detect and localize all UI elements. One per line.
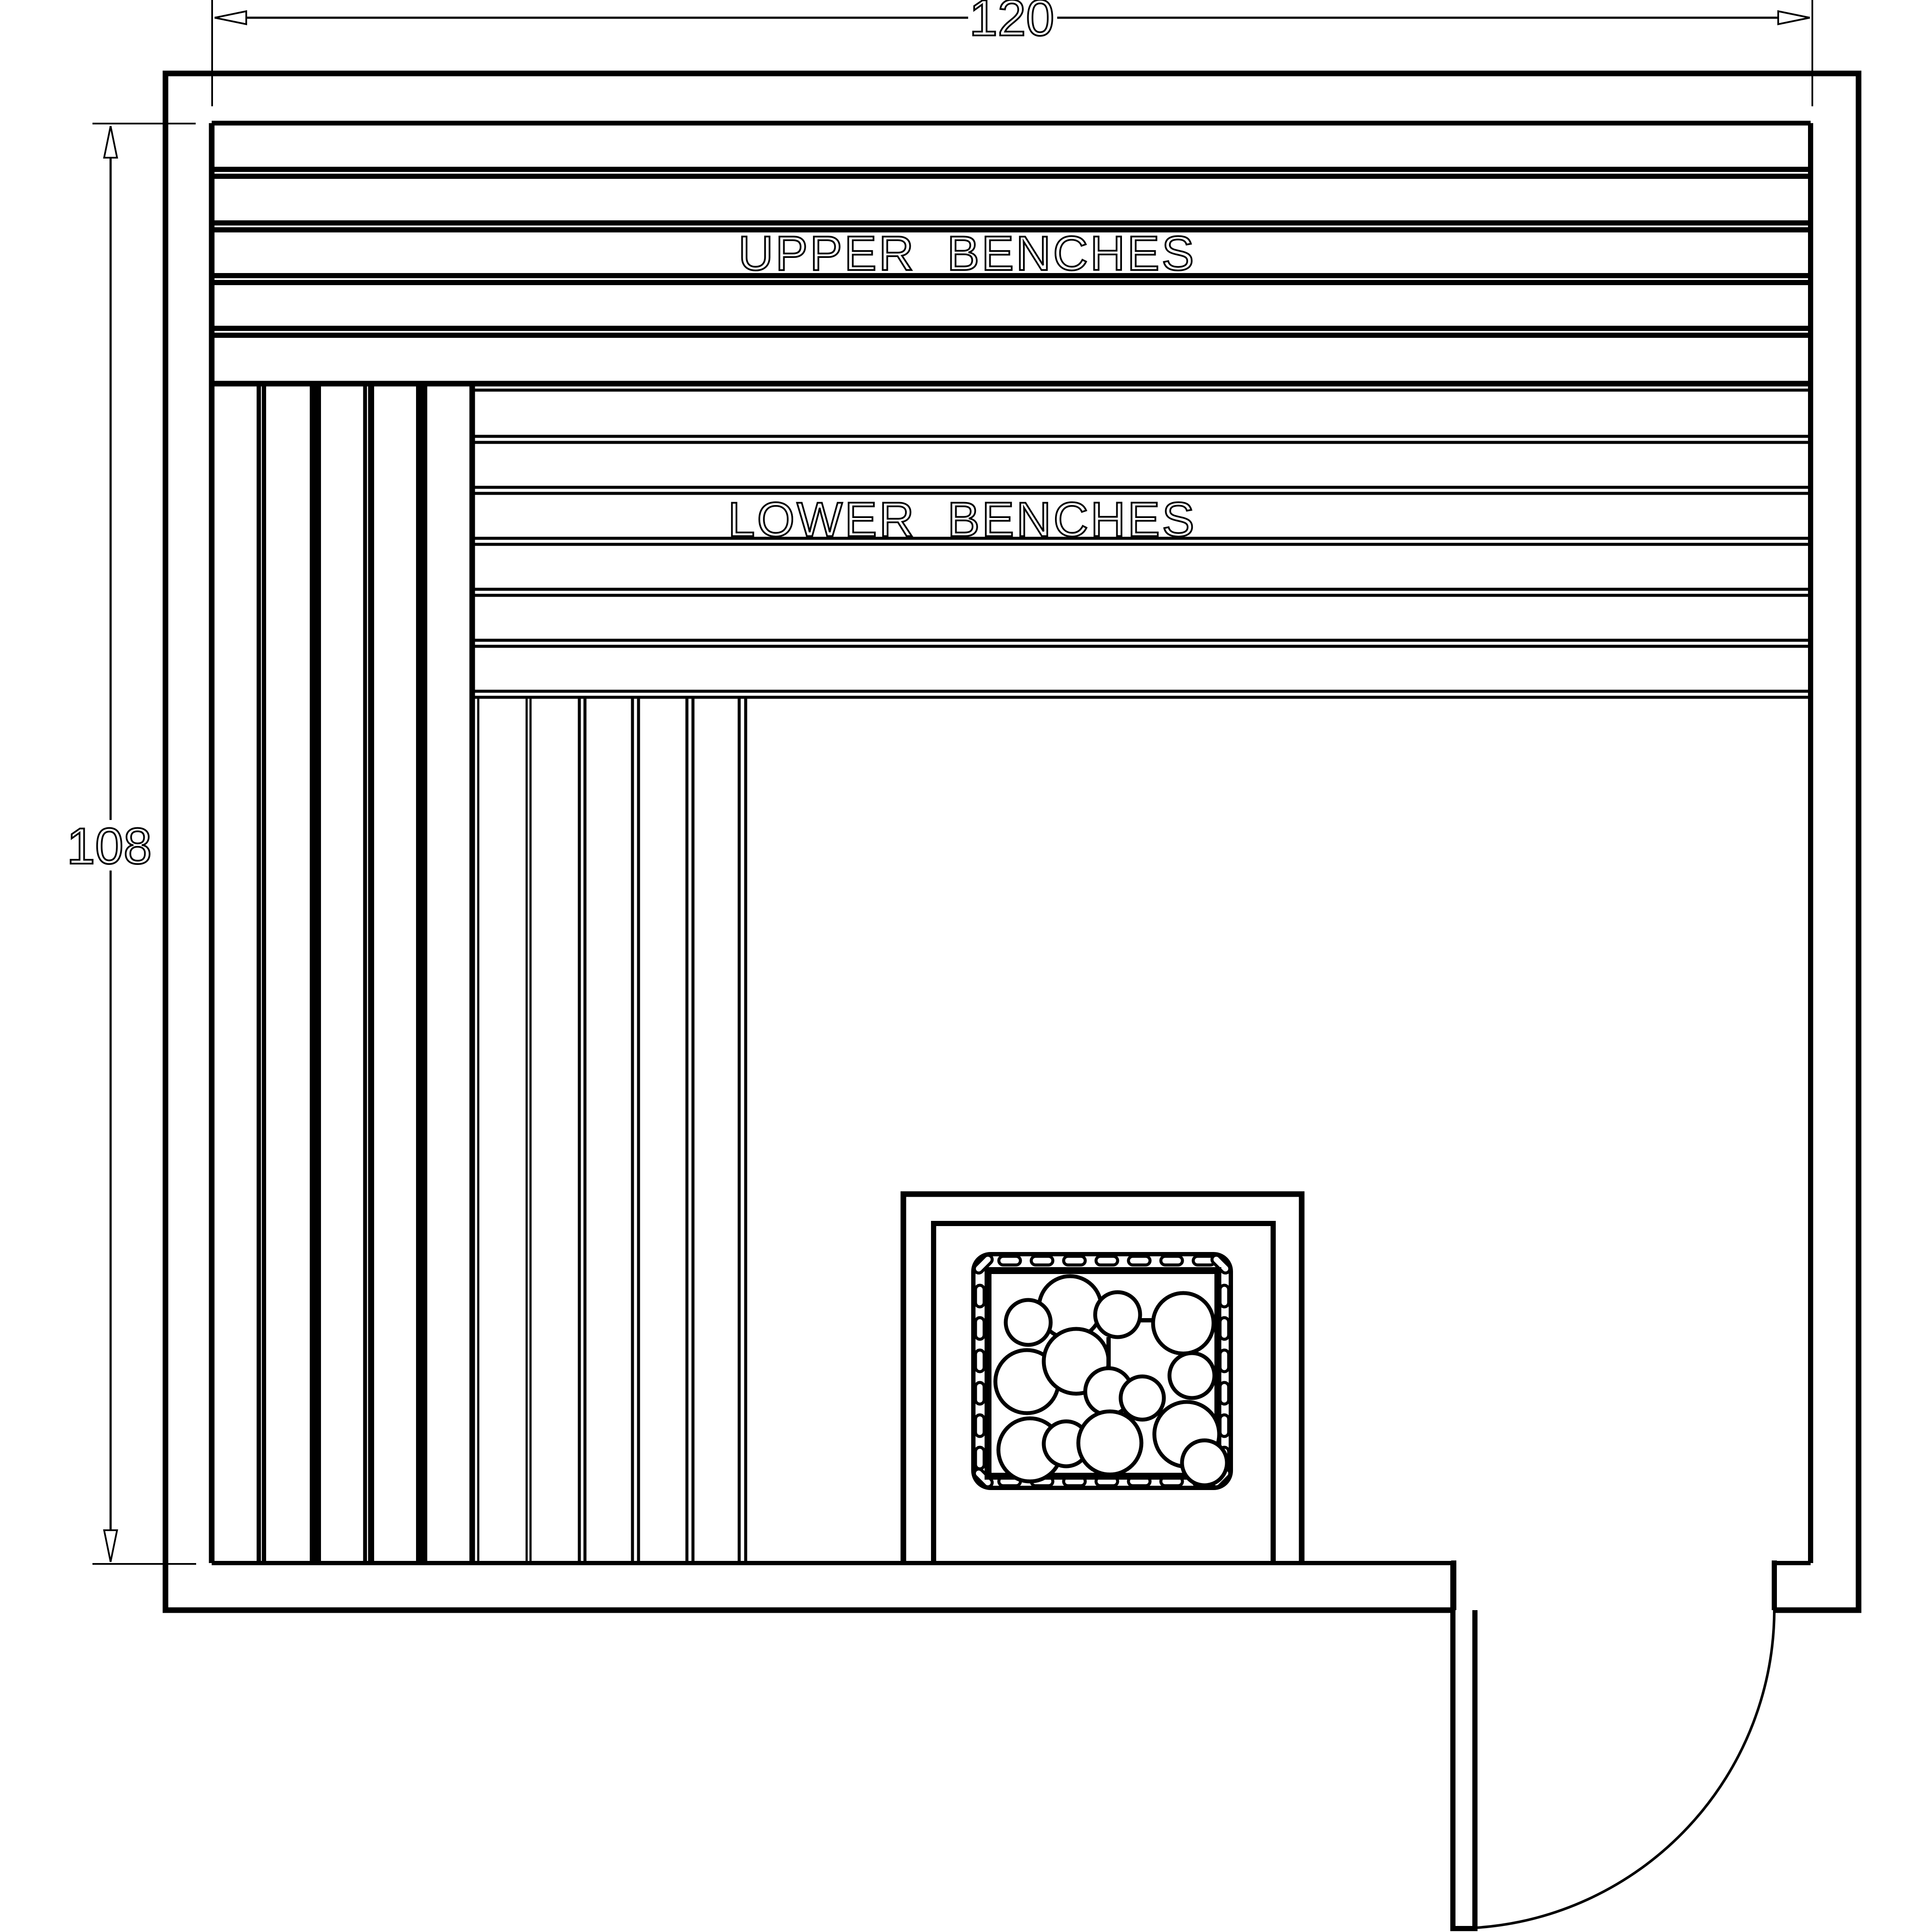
svg-text:UPPER BENCHES: UPPER BENCHES bbox=[738, 226, 1196, 280]
svg-text:LOWER BENCHES: LOWER BENCHES bbox=[728, 493, 1196, 547]
svg-text:108: 108 bbox=[67, 818, 152, 875]
svg-text:120: 120 bbox=[969, 0, 1055, 47]
